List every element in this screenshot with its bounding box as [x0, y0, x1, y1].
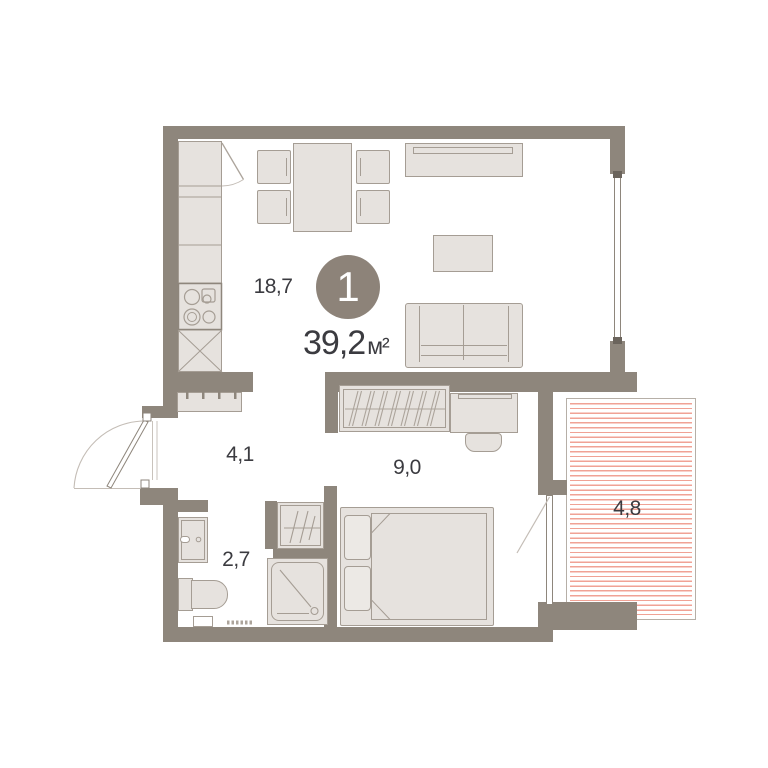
plan-details-layer: [0, 0, 768, 768]
counter-dividers: [178, 186, 222, 330]
wardrobe-hangers: [345, 391, 445, 426]
total-area-label: 39,2м²: [303, 324, 389, 363]
burner: [184, 309, 200, 325]
room-label-bedroom: 9,0: [382, 456, 432, 480]
coat-rack-hooks: [186, 392, 237, 399]
door-frame-block: [143, 413, 151, 421]
entrance-opening-lines: [153, 421, 158, 480]
shower-details: [277, 570, 318, 615]
burner: [185, 290, 200, 305]
threshold-dots: [227, 621, 252, 625]
unit-number-badge: 1: [316, 255, 380, 319]
washer-details: [284, 511, 320, 543]
chair-detail-lines: [287, 158, 361, 216]
total-area-value: 39,2: [303, 324, 365, 362]
burner: [188, 313, 197, 322]
entrance-door-leaf: [107, 420, 148, 488]
total-area-unit: м²: [367, 333, 388, 359]
blanket-folds: [372, 514, 391, 620]
door-frame-block: [141, 480, 149, 488]
entrance-door: [74, 413, 157, 489]
entrance-door-arc: [74, 421, 145, 488]
room-label-bathroom: 2,7: [211, 548, 261, 572]
sofa-seams: [420, 305, 509, 362]
burner: [203, 311, 215, 323]
sink-knob: [196, 537, 201, 542]
room-label-hallway: 4,1: [215, 443, 265, 467]
room-label-kitchen-living: 18,7: [240, 275, 306, 299]
floor-plan: 18,7 4,1 9,0 2,7 4,8 1 39,2м²: [0, 0, 768, 768]
cabinet-x-icon: [178, 330, 222, 372]
room-label-balcony: 4,8: [602, 497, 652, 521]
fridge-door-swing: [222, 143, 244, 186]
stove: [179, 284, 222, 330]
balcony-door-swing: [517, 497, 550, 553]
